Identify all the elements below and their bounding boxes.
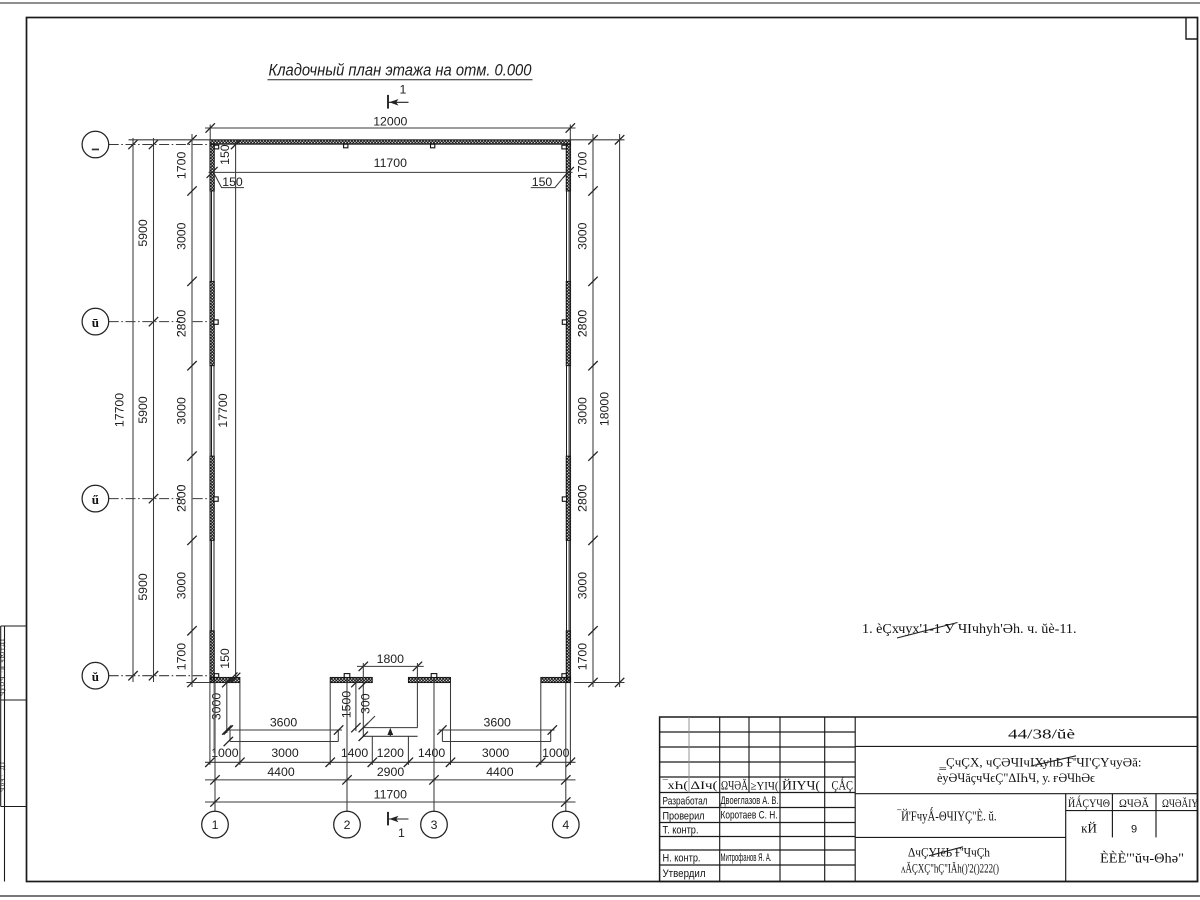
svg-text:17700: 17700 (112, 393, 126, 427)
svg-text:Проверил: Проверил (663, 810, 705, 822)
svg-text:12000: 12000 (373, 114, 407, 128)
svg-text:ÇǺÇ: ÇǺÇ (832, 777, 854, 793)
svg-text:18000: 18000 (598, 392, 612, 426)
svg-text:3: 3 (431, 818, 438, 832)
svg-text:‗ÇчÇХ, чÇƏЧΙчΙХуhЬ Ғ'ЧΙ'ÇΥчуƏă: ‗ÇчÇХ, чÇƏЧΙчΙХуhЬ Ғ'ЧΙ'ÇΥчуƏă: (938, 755, 1141, 770)
svg-text:2: 2 (344, 818, 351, 832)
svg-text:ЙΙΥЧ(: ЙΙΥЧ( (782, 779, 820, 793)
svg-text:3000: 3000 (575, 572, 589, 600)
svg-text:1. èÇхчух'1-1 У ЧІчhуh'Əh. ч.: 1. èÇхчух'1-1 У ЧІчhуh'Əh. ч. ŭè-11. (862, 622, 1077, 637)
svg-text:2800: 2800 (575, 484, 589, 512)
svg-text:150: 150 (222, 175, 243, 189)
svg-text:èуƏЧăçчЧϵÇ"ΔΙҺЧ, у. ғƏЧhƏϵ: èуƏЧăçчЧϵÇ"ΔΙҺЧ, у. ғƏЧhƏϵ (937, 770, 1095, 785)
svg-text:1: 1 (398, 826, 405, 840)
svg-text:кЙ: кЙ (1081, 821, 1097, 836)
svg-text:5900: 5900 (136, 219, 150, 247)
svg-text:5900: 5900 (136, 573, 150, 601)
svg-text:≥YΙЧ(: ≥YΙЧ( (751, 781, 779, 793)
svg-text:Т. контр.: Т. контр. (663, 824, 699, 836)
svg-text:1400: 1400 (341, 746, 369, 760)
svg-text:2800: 2800 (174, 484, 188, 512)
svg-text:1700: 1700 (575, 643, 589, 671)
svg-text:1700: 1700 (174, 152, 188, 180)
svg-text:150: 150 (532, 175, 553, 189)
svg-text:17700: 17700 (216, 393, 230, 427)
svg-text:150: 150 (218, 144, 232, 165)
svg-text:ΩЧƏĂ: ΩЧƏĂ (721, 779, 748, 793)
svg-text:300: 300 (358, 693, 372, 714)
svg-text:ŭ: ŭ (92, 669, 99, 684)
svg-text:3000: 3000 (174, 397, 188, 425)
svg-text:3000: 3000 (575, 222, 589, 250)
svg-text:4400: 4400 (486, 765, 514, 779)
svg-text:5900: 5900 (136, 396, 150, 424)
svg-text:2900: 2900 (377, 765, 405, 779)
svg-text:150: 150 (218, 648, 232, 669)
svg-text:3600: 3600 (270, 715, 298, 729)
svg-text:Разработал: Разработал (663, 795, 708, 807)
svg-text:Коротаев С. Н.: Коротаев С. Н. (721, 810, 778, 822)
svg-text:1: 1 (400, 83, 407, 97)
svg-text:11700: 11700 (374, 156, 407, 170)
svg-text:3000: 3000 (575, 397, 589, 425)
svg-text:ЙǺÇΥЧΘ: ЙǺÇΥЧΘ (1068, 794, 1110, 810)
svg-text:4: 4 (562, 818, 569, 832)
svg-text:3000: 3000 (271, 746, 299, 760)
svg-text:3000: 3000 (482, 746, 510, 760)
svg-text:11700: 11700 (374, 787, 407, 801)
svg-text:3000: 3000 (174, 572, 188, 600)
svg-text:Утвердил: Утвердил (663, 868, 706, 880)
svg-text:1200: 1200 (377, 746, 405, 760)
svg-text:3000: 3000 (209, 693, 223, 721)
svg-text:ΔΙч(: ΔΙч( (691, 780, 718, 792)
svg-text:ΔчÇΥΙĕЬ Ғ'ЧчÇh: ΔчÇΥΙĕЬ Ғ'ЧчÇh (908, 844, 990, 859)
svg-text:1800: 1800 (377, 652, 405, 666)
svg-text:1500: 1500 (339, 691, 353, 719)
svg-text:9: 9 (1131, 824, 1137, 836)
svg-text:2800: 2800 (575, 310, 589, 338)
svg-text:1: 1 (212, 818, 219, 832)
svg-text:Митрофанов Я. А.: Митрофанов Я. А. (721, 852, 772, 864)
svg-text:‾Й'FчуǺ-ΘЧΙΥÇ"È. ŭ.: ‾Й'FчуǺ-ΘЧΙΥÇ"È. ŭ. (897, 808, 997, 824)
svg-text:‾хҺ(: ‾хҺ( (662, 779, 688, 792)
svg-text:1400: 1400 (418, 746, 446, 760)
svg-text:4400: 4400 (267, 765, 295, 779)
svg-text:ΩЧƏĂ: ΩЧƏĂ (1119, 796, 1149, 810)
svg-text:1700: 1700 (174, 643, 188, 671)
svg-text:1700: 1700 (575, 152, 589, 180)
svg-text:Кладочный план этажа на отм. 0: Кладочный план этажа на отм. 0.000 (269, 62, 532, 80)
svg-text:Двоеглазов А. В.: Двоеглазов А. В. (721, 795, 779, 807)
svg-text:ʌĂÇΧÇ"hÇ"ΙĂh()'2()222(): ʌĂÇΧÇ"hÇ"ΙĂh()'2()222() (901, 862, 999, 876)
svg-text:3600: 3600 (484, 715, 512, 729)
svg-text:ΩЧƏĂΙΥ: ΩЧƏĂΙΥ (1162, 796, 1198, 810)
svg-text:ÈÈÈ'"ŭч-Θhə": ÈÈÈ'"ŭч-Θhə" (1100, 850, 1184, 865)
svg-text:44/38/ŭè: 44/38/ŭè (1008, 727, 1075, 742)
svg-text:ű: ű (92, 492, 99, 507)
svg-text:ū: ū (92, 315, 99, 330)
svg-text:2800: 2800 (174, 310, 188, 338)
svg-text:Н. контр.: Н. контр. (663, 853, 701, 865)
svg-text:3000: 3000 (174, 222, 188, 250)
